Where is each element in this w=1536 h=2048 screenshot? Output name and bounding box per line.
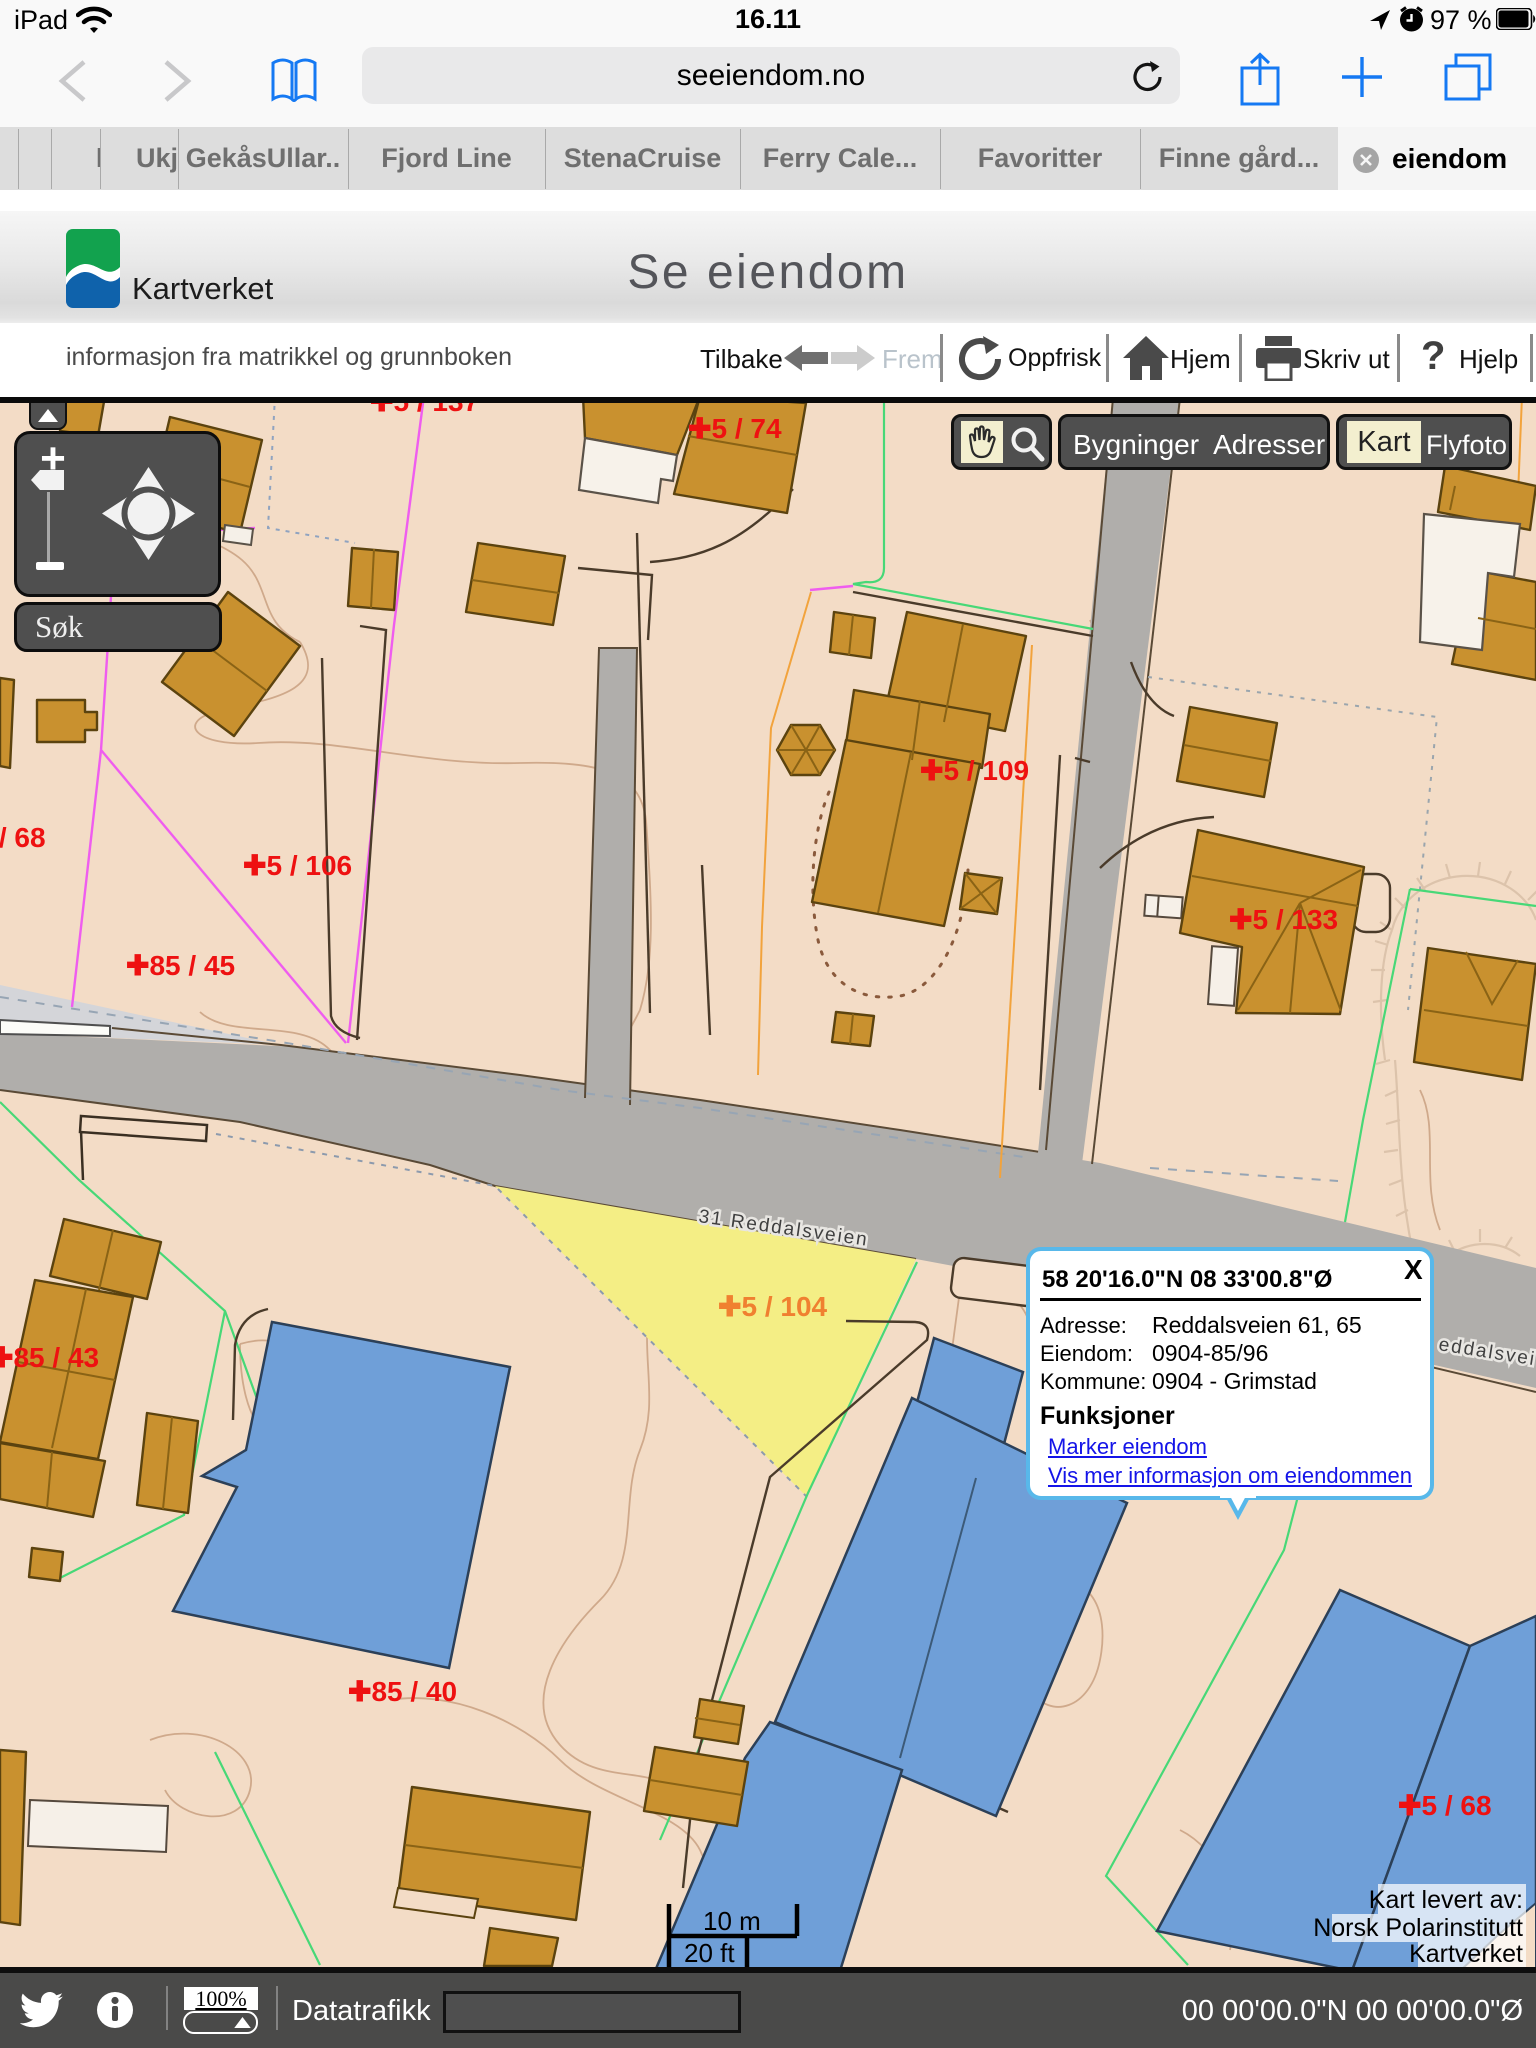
- svg-text:10 m: 10 m: [703, 1906, 761, 1936]
- svg-text:✚5 / 68: ✚5 / 68: [0, 822, 46, 853]
- svg-text:✚5 / 109: ✚5 / 109: [920, 755, 1029, 786]
- svg-text:20 ft: 20 ft: [684, 1938, 735, 1967]
- svg-text:Norsk Polarinstitutt: Norsk Polarinstitutt: [1313, 1914, 1523, 1942]
- svg-text:✚5 / 74: ✚5 / 74: [688, 413, 782, 444]
- svg-text:✚5 / 106: ✚5 / 106: [243, 850, 352, 881]
- svg-text:✚85 / 40: ✚85 / 40: [348, 1676, 457, 1707]
- svg-text:✚5 / 133: ✚5 / 133: [1229, 904, 1338, 935]
- svg-text:Kartverket: Kartverket: [1409, 1940, 1523, 1967]
- svg-text:✚5 / 68: ✚5 / 68: [1398, 1790, 1492, 1821]
- svg-text:✚85 / 43: ✚85 / 43: [0, 1342, 99, 1373]
- svg-text:✚5 / 137: ✚5 / 137: [370, 403, 479, 417]
- svg-text:✚5 / 104: ✚5 / 104: [718, 1291, 828, 1322]
- svg-text:✚85 / 45: ✚85 / 45: [126, 950, 235, 981]
- svg-text:Kart levert av:: Kart levert av:: [1369, 1886, 1523, 1914]
